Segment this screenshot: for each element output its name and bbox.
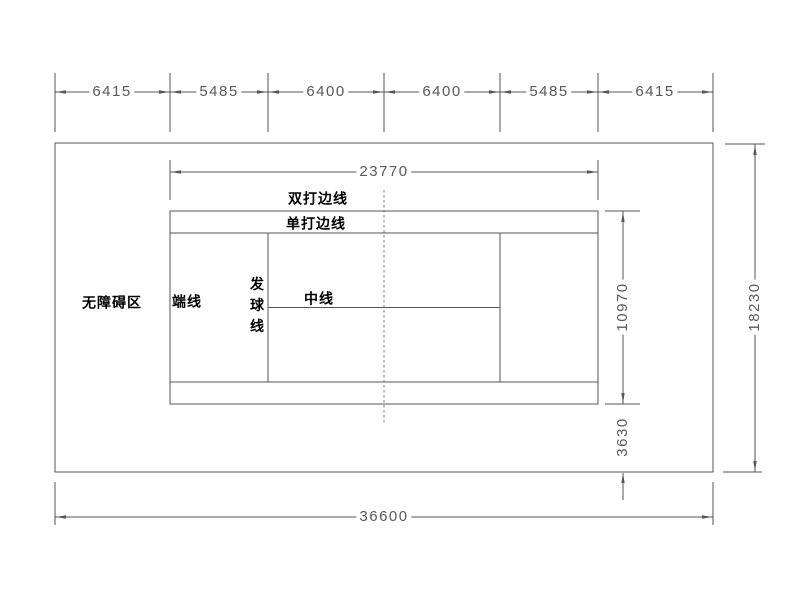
total-length-dimension	[55, 482, 713, 525]
total-width-dimension	[723, 144, 765, 472]
diagram-linework	[0, 0, 800, 600]
tennis-court-dimension-diagram: 6415 5485 6400 6400 5485 6415 23770 3660…	[0, 0, 800, 600]
top-dimension	[55, 73, 713, 132]
court-length-dimension	[170, 160, 598, 200]
court-width-dimension	[605, 211, 640, 404]
dimension-arrowheads	[56, 90, 757, 518]
